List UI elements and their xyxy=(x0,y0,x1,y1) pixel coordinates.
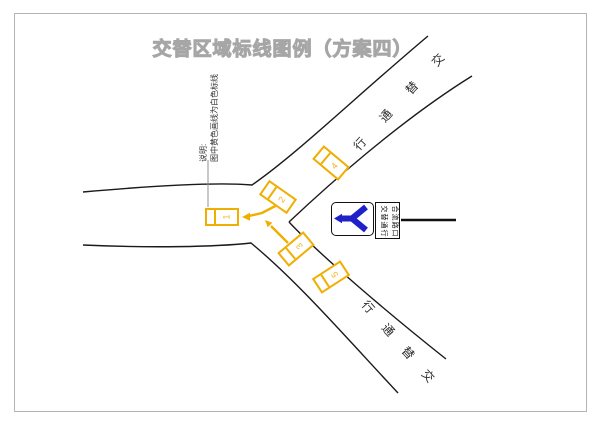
y-merge-arrow-icon xyxy=(332,203,372,234)
merge-arrow-upper-head-icon xyxy=(242,213,250,221)
merge-sign-label-line1: 合流路口 xyxy=(389,203,400,239)
vehicle-1: 1 xyxy=(205,208,239,226)
annotation-body: 图中黄色画线为白色标线 xyxy=(209,66,220,162)
merge-sign-label-text: 合流路口 交替通行 xyxy=(376,203,400,239)
annotation-note: 说明: 图中黄色画线为白色标线 xyxy=(198,66,222,162)
vehicle-body: 1 xyxy=(216,210,237,224)
road-edge-lower-outer xyxy=(83,243,398,393)
annotation-note-text: 说明: 图中黄色画线为白色标线 xyxy=(198,66,222,162)
merge-sign-label-line2: 交替通行 xyxy=(378,203,389,239)
merge-sign xyxy=(331,202,374,236)
vehicle-number: 4 xyxy=(329,161,340,171)
merge-sign-label-plate: 合流路口 交替通行 xyxy=(375,202,400,239)
road-diagram-canvas xyxy=(0,0,600,424)
annotation-label: 说明: xyxy=(198,66,209,162)
vehicle-number: 3 xyxy=(294,241,305,251)
vehicle-number: 5 xyxy=(329,270,340,280)
vehicle-number: 2 xyxy=(276,195,287,205)
vehicle-number: 1 xyxy=(221,214,231,219)
merge-arrow-from-lower-branch xyxy=(271,226,288,243)
vehicle-windshield-divider xyxy=(207,210,216,224)
road-edge-upper-inner xyxy=(289,76,472,222)
